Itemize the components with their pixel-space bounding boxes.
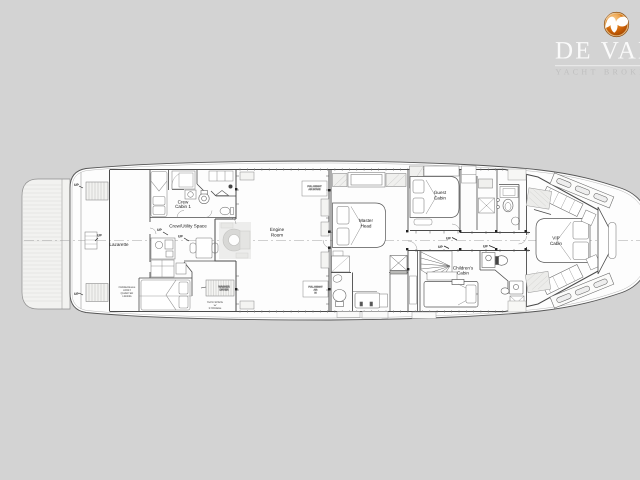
svg-text:Cabin: Cabin: [457, 271, 469, 276]
svg-text:UP: UP: [178, 235, 183, 239]
svg-text:UP: UP: [74, 292, 79, 296]
svg-text:DRYER: DRYER: [219, 289, 228, 292]
svg-text:DE VALK: DE VALK: [555, 38, 640, 65]
svg-text:AIR INTAKE: AIR INTAKE: [309, 188, 322, 191]
svg-text:FULL HEIGHT: FULL HEIGHT: [308, 286, 323, 289]
svg-text:Room: Room: [271, 233, 283, 238]
svg-text:FULL HEIGHT: FULL HEIGHT: [307, 185, 322, 188]
svg-text:VIP: VIP: [552, 236, 559, 241]
svg-text:UP: UP: [446, 237, 451, 241]
svg-text:Head: Head: [361, 224, 372, 229]
svg-text:HIDING: HIDING: [122, 295, 131, 298]
svg-text:STORAGE: STORAGE: [209, 307, 222, 310]
svg-text:Cabin: Cabin: [434, 196, 446, 201]
svg-text:UP: UP: [97, 234, 102, 238]
svg-text:Crew/Utility Space: Crew/Utility Space: [169, 224, 207, 229]
svg-text:Engine: Engine: [270, 227, 285, 232]
svg-text:UP: UP: [483, 245, 488, 249]
svg-text:Lazarette: Lazarette: [109, 242, 129, 247]
svg-text:Cabin 1: Cabin 1: [175, 204, 191, 209]
svg-text:Master: Master: [359, 218, 374, 223]
svg-text:Cabin: Cabin: [550, 241, 562, 246]
svg-text:Guest: Guest: [434, 190, 447, 195]
svg-text:UP: UP: [74, 183, 79, 187]
svg-text:AIR: AIR: [314, 289, 318, 292]
svg-text:UP: UP: [438, 245, 443, 249]
svg-text:YACHT BROKERS: YACHT BROKERS: [556, 68, 640, 77]
svg-text:UP: UP: [157, 228, 162, 232]
